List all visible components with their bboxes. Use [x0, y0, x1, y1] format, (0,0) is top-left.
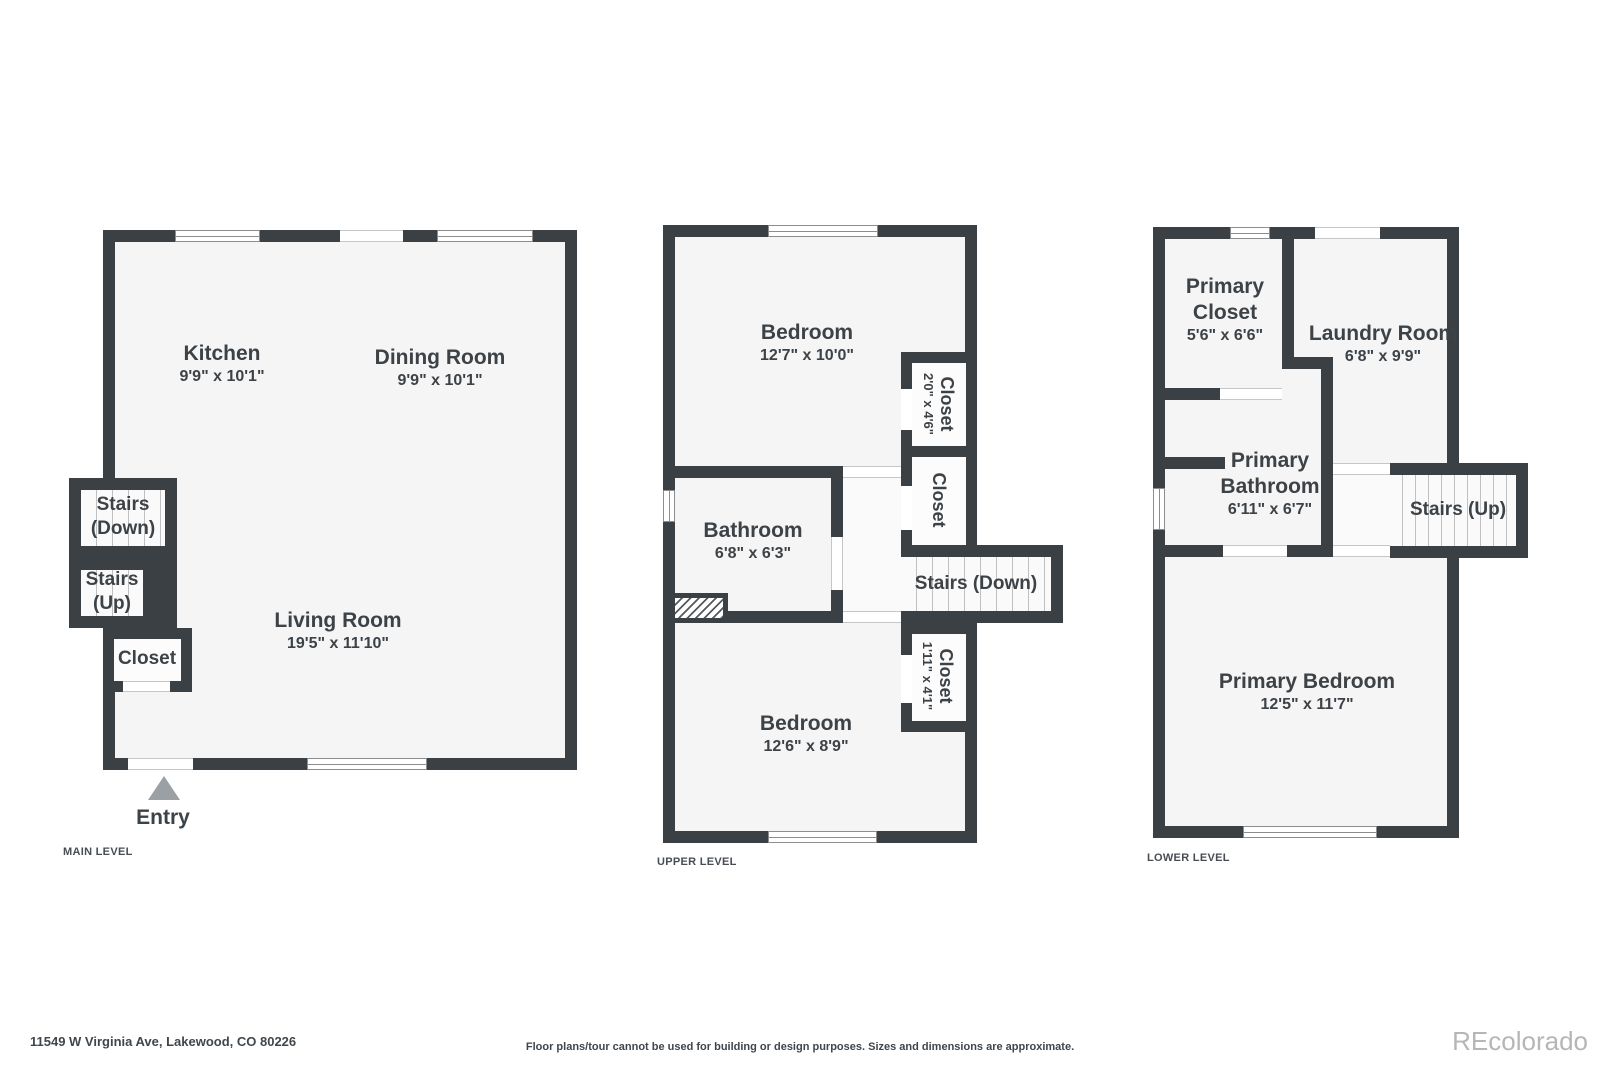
wall [831, 466, 843, 537]
room-dims: 9'9" x 10'1" [179, 367, 264, 387]
room-dims: 12'6" x 8'9" [760, 737, 852, 757]
wall [143, 558, 177, 628]
entry-label: Entry [136, 805, 190, 831]
wall-opening [843, 466, 901, 478]
wall [1287, 545, 1333, 557]
room-dims: 9'9" x 10'1" [375, 371, 506, 391]
wall [1321, 357, 1333, 557]
room-name: Kitchen [179, 341, 264, 367]
room-name: Stairs (Up) [1410, 498, 1506, 522]
window [1243, 826, 1377, 838]
room-label-laundry-room: Laundry Room 6'8" x 9'9" [1309, 321, 1457, 367]
window [1230, 227, 1270, 239]
room-label-stairs-up: Stairs (Up) [1410, 498, 1506, 522]
room-dims: 19'5" x 11'10" [274, 634, 401, 654]
room-label-stairs-up: Stairs (Up) [86, 568, 139, 616]
entry-text: Entry [136, 805, 190, 831]
disclaimer-text: Floor plans/tour cannot be used for buil… [526, 1041, 1074, 1053]
room-dims: 12'7" x 10'0" [760, 346, 854, 366]
room-dims: 6'8" x 9'9" [1309, 347, 1457, 367]
wall [1153, 457, 1225, 469]
room-name: Closet [936, 373, 958, 435]
door-opening [901, 389, 912, 430]
wall [1153, 545, 1223, 557]
room-label-bathroom: Bathroom 6'8" x 6'3" [703, 518, 802, 564]
hallway [843, 478, 901, 611]
room-dims: 6'11" x 6'7" [1220, 500, 1319, 520]
room-label-closet-bottom: Closet 1'11" x 4'1" [919, 642, 957, 710]
room-name: Bedroom [760, 320, 854, 346]
wall-opening [1333, 545, 1390, 557]
room-name: Closet [928, 472, 950, 527]
room-dims: 6'8" x 6'3" [703, 544, 802, 564]
room-name: Stairs [86, 568, 139, 592]
room-label-kitchen: Kitchen 9'9" x 10'1" [179, 341, 264, 387]
window [175, 230, 260, 242]
entry-door-opening [128, 758, 193, 770]
wall [912, 446, 966, 457]
room-label-bedroom-top: Bedroom 12'7" x 10'0" [760, 320, 854, 366]
room-name: Closet [118, 647, 176, 671]
level-label-lower: LOWER LEVEL [1147, 852, 1230, 864]
room-label-living-room: Living Room 19'5" x 11'10" [274, 608, 401, 654]
door-opening [123, 681, 170, 692]
room-name: Dining Room [375, 345, 506, 371]
room-label-closet: Closet [118, 647, 176, 671]
room-name: Bedroom [760, 711, 852, 737]
entry-arrow-icon [148, 776, 180, 800]
room-name: Primary [1186, 274, 1264, 300]
room-name: Laundry Room [1309, 321, 1457, 347]
room-name: Primary Bedroom [1219, 669, 1395, 695]
door-opening [901, 486, 912, 530]
wall [831, 590, 843, 611]
room-name: Bathroom [703, 518, 802, 544]
property-address: 11549 W Virginia Ave, Lakewood, CO 80226 [30, 1034, 296, 1049]
recolorado-logo: REcolorado [1452, 1026, 1588, 1057]
hallway [1333, 475, 1390, 545]
room-label-stairs-down: Stairs (Down) [91, 493, 155, 541]
door-opening [831, 537, 843, 590]
wall-opening [340, 230, 403, 242]
window [307, 758, 427, 770]
door-opening [901, 655, 912, 703]
room-dims: 1'11" x 4'1" [919, 642, 935, 710]
room-name: (Up) [86, 592, 139, 616]
room-name: Primary [1220, 448, 1319, 474]
room-label-closet-top: Closet 2'0" x 4'6" [920, 373, 958, 435]
room-name: (Down) [91, 517, 155, 541]
level-label-upper: UPPER LEVEL [657, 856, 737, 868]
wall [1153, 388, 1220, 400]
door-opening [1223, 545, 1287, 557]
room-label-primary-bathroom: Primary Bathroom 6'11" x 6'7" [1220, 448, 1319, 520]
chimney-hatch-icon [670, 593, 728, 623]
room-label-bedroom-bottom: Bedroom 12'6" x 8'9" [760, 711, 852, 757]
wall-opening [1315, 227, 1380, 239]
room-name: Stairs (Down) [915, 572, 1037, 596]
room-name: Closet [1186, 300, 1264, 326]
room-dims: 12'5" x 11'7" [1219, 695, 1395, 715]
level-label-main: MAIN LEVEL [63, 846, 133, 858]
room-dims: 2'0" x 4'6" [920, 373, 936, 435]
room-name: Living Room [274, 608, 401, 634]
room-label-primary-bedroom: Primary Bedroom 12'5" x 11'7" [1219, 669, 1395, 715]
door-opening [1333, 463, 1390, 475]
room-label-dining-room: Dining Room 9'9" x 10'1" [375, 345, 506, 391]
floor-plan-image: Kitchen 9'9" x 10'1" Dining Room 9'9" x … [0, 0, 1600, 1066]
wall [663, 466, 843, 478]
door-opening [1220, 388, 1282, 400]
room-name: Closet [935, 642, 957, 710]
room-dims: 5'6" x 6'6" [1186, 326, 1264, 346]
room-label-closet-middle: Closet [928, 472, 950, 527]
room-label-primary-closet: Primary Closet 5'6" x 6'6" [1186, 274, 1264, 346]
room-name: Stairs [91, 493, 155, 517]
window [768, 225, 878, 237]
window [1153, 488, 1165, 530]
wall-opening [843, 611, 901, 623]
wall [1282, 227, 1294, 368]
window [663, 490, 675, 522]
window [437, 230, 533, 242]
room-label-stairs-down: Stairs (Down) [915, 572, 1037, 596]
window [768, 831, 877, 843]
room-name: Bathroom [1220, 474, 1319, 500]
